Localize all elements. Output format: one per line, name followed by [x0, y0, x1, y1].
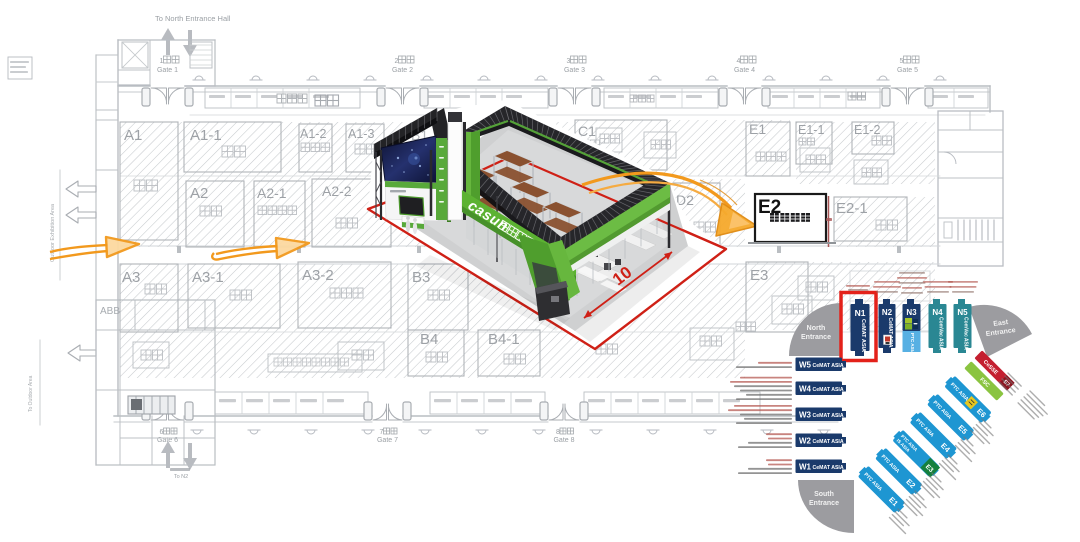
svg-text:To N2: To N2	[174, 474, 188, 480]
svg-text:E2-1: E2-1	[836, 200, 868, 217]
svg-text:A3-1: A3-1	[192, 269, 224, 286]
svg-text:Outdoor Exhibition Area: Outdoor Exhibition Area	[50, 203, 56, 262]
svg-text:N1: N1	[855, 308, 866, 318]
svg-text:3: 3	[567, 58, 571, 65]
svg-text:W3: W3	[799, 411, 812, 420]
svg-text:CeMAT ASIA: CeMAT ASIA	[813, 439, 844, 445]
svg-text:CeMAT ASIA: CeMAT ASIA	[813, 413, 844, 419]
svg-text:Gate 3: Gate 3	[564, 67, 585, 74]
svg-text:W2: W2	[799, 437, 812, 446]
svg-text:E1-2: E1-2	[854, 123, 880, 137]
svg-text:To North Entrance Hall: To North Entrance Hall	[155, 14, 231, 23]
svg-text:Entrance: Entrance	[809, 500, 839, 507]
svg-text:E1-1: E1-1	[798, 123, 824, 137]
svg-text:Gate 4: Gate 4	[734, 67, 755, 74]
svg-text:1: 1	[160, 58, 164, 65]
svg-text:CeMAT ASIA: CeMAT ASIA	[813, 363, 844, 369]
svg-text:A3-2: A3-2	[302, 267, 334, 284]
svg-text:South: South	[814, 491, 834, 498]
svg-text:2: 2	[395, 58, 399, 65]
svg-text:A1-2: A1-2	[300, 127, 326, 141]
svg-text:B3: B3	[412, 269, 430, 286]
svg-text:A1-3: A1-3	[348, 127, 374, 141]
svg-text:8: 8	[556, 429, 560, 436]
svg-text:7: 7	[380, 429, 384, 436]
svg-text:ComVac ASIA: ComVac ASIA	[963, 317, 969, 350]
svg-text:ComVac ASIA: ComVac ASIA	[938, 317, 944, 350]
svg-text:Gate 7: Gate 7	[377, 437, 398, 444]
svg-text:B4: B4	[420, 331, 438, 348]
svg-text:5: 5	[900, 58, 904, 65]
svg-text:N2: N2	[882, 308, 893, 317]
svg-text:N5: N5	[957, 308, 968, 317]
svg-text:4: 4	[737, 58, 741, 65]
svg-text:CeMAT ASIA: CeMAT ASIA	[813, 465, 844, 471]
svg-text:W1: W1	[799, 463, 812, 472]
svg-text:A2-2: A2-2	[322, 183, 352, 199]
svg-text:Gate 5: Gate 5	[897, 67, 918, 74]
svg-text:A1: A1	[124, 127, 142, 144]
svg-text:E1: E1	[749, 121, 766, 137]
svg-text:North: North	[807, 325, 826, 332]
svg-text:ABB: ABB	[100, 306, 120, 317]
svg-text:Gate 8: Gate 8	[553, 437, 574, 444]
svg-text:A3: A3	[122, 269, 140, 286]
svg-text:A1-1: A1-1	[190, 127, 222, 144]
svg-text:6: 6	[160, 429, 164, 436]
svg-text:Gate 2: Gate 2	[392, 67, 413, 74]
svg-text:Gate 1: Gate 1	[157, 67, 178, 74]
svg-text:W5: W5	[799, 361, 812, 370]
svg-text:E3: E3	[750, 267, 768, 284]
svg-text:W4: W4	[799, 385, 812, 394]
svg-text:PTC ASIA: PTC ASIA	[910, 333, 915, 355]
svg-text:CeMAT ASIA: CeMAT ASIA	[860, 319, 866, 352]
svg-text:N4: N4	[932, 308, 943, 317]
svg-text:Entrance: Entrance	[801, 334, 831, 341]
svg-text:To Outdoor Area: To Outdoor Area	[28, 375, 34, 412]
svg-text:A2: A2	[190, 185, 208, 202]
svg-text:A2-1: A2-1	[257, 185, 287, 201]
svg-text:CeMAT ASIA: CeMAT ASIA	[813, 387, 844, 393]
svg-text:B4-1: B4-1	[488, 331, 520, 348]
svg-text:N3: N3	[906, 308, 917, 317]
